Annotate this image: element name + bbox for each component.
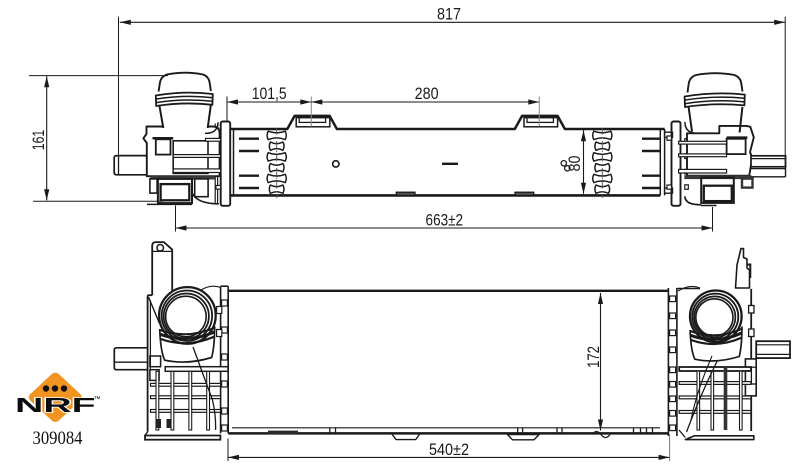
svg-text:161: 161 — [30, 130, 48, 151]
svg-text:101,5: 101,5 — [252, 85, 287, 103]
svg-text:NRF: NRF — [15, 393, 96, 416]
svg-text:540±2: 540±2 — [429, 441, 469, 459]
svg-text:663±2: 663±2 — [426, 212, 464, 230]
svg-text:™: ™ — [94, 396, 101, 403]
svg-text:817: 817 — [437, 4, 461, 23]
svg-text:309084: 309084 — [33, 428, 83, 449]
svg-text:80: 80 — [566, 156, 584, 172]
svg-text:172: 172 — [585, 346, 603, 368]
svg-text:280: 280 — [415, 85, 439, 103]
